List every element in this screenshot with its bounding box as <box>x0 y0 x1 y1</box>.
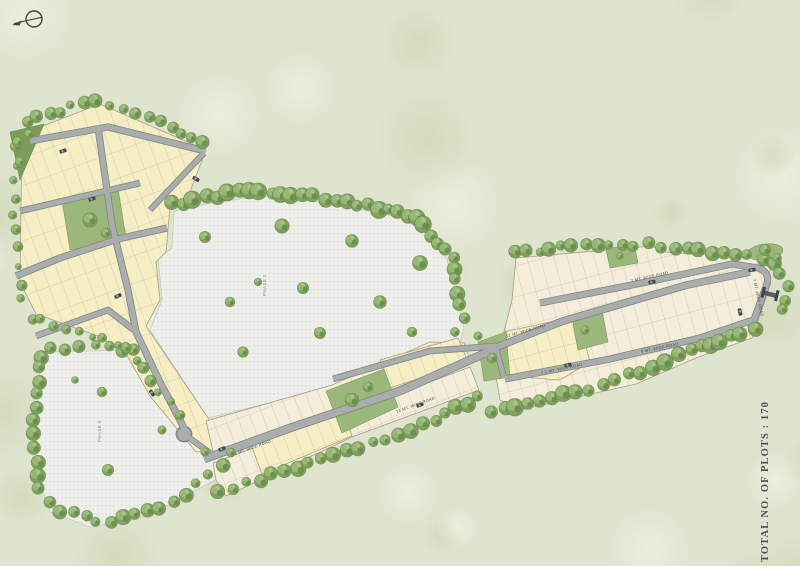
tree-icon <box>608 373 621 386</box>
tree-icon <box>302 457 313 468</box>
tree-icon <box>53 505 67 519</box>
tree-icon <box>604 240 613 249</box>
tree-icon <box>416 417 430 431</box>
tree-icon <box>759 244 771 256</box>
site-plan-canvas: PHASE 2 PHASE 3 12 MT. WIDE ROAD <box>0 0 800 566</box>
tree-icon <box>225 297 235 307</box>
tree-icon <box>186 132 196 142</box>
tree-icon <box>616 252 623 259</box>
tree-icon <box>275 219 289 233</box>
foliage-blob <box>378 3 458 83</box>
tree-icon <box>519 244 532 257</box>
tree-icon <box>91 340 100 349</box>
tree-icon <box>33 375 47 389</box>
tree-icon <box>176 129 186 139</box>
tree-icon <box>783 280 795 292</box>
tree-icon <box>116 509 131 524</box>
tree-icon <box>97 387 107 397</box>
tree-icon <box>643 237 655 249</box>
tree-icon <box>15 263 21 269</box>
tree-icon <box>369 437 379 447</box>
tree-icon <box>345 393 359 407</box>
tree-icon <box>105 341 115 351</box>
tree-icon <box>315 453 327 465</box>
tree-icon <box>15 157 25 167</box>
tree-icon <box>583 385 595 397</box>
tree-icon <box>506 399 523 416</box>
phase3-label: PHASE 3 <box>97 420 102 442</box>
tree-icon <box>407 327 417 337</box>
tree-icon <box>351 200 362 211</box>
tree-icon <box>114 341 122 349</box>
foliage-blob <box>375 460 441 526</box>
tree-icon <box>772 253 781 262</box>
tree-icon <box>403 424 418 439</box>
foliage-blob <box>373 84 481 192</box>
tree-icon <box>9 176 17 184</box>
tree-icon <box>487 353 497 363</box>
tree-icon <box>75 327 83 335</box>
tree-icon <box>88 94 102 108</box>
tree-icon <box>11 224 21 234</box>
tree-icon <box>564 238 578 252</box>
tree-icon <box>203 470 213 480</box>
tree-icon <box>30 401 43 414</box>
tree-icon <box>13 241 23 251</box>
tree-icon <box>228 484 239 495</box>
tree-icon <box>732 327 747 342</box>
tree-icon <box>485 406 498 419</box>
tree-icon <box>314 327 326 339</box>
tree-icon <box>175 410 185 420</box>
tree-icon <box>13 137 24 148</box>
tree-icon <box>154 389 161 396</box>
tree-icon <box>196 135 210 149</box>
tree-icon <box>773 267 785 279</box>
tree-icon <box>17 280 28 291</box>
tree-icon <box>62 325 72 335</box>
tree-icon <box>66 101 74 109</box>
tree-icon <box>380 435 391 446</box>
tree-icon <box>24 129 33 138</box>
tree-icon <box>201 448 210 457</box>
tree-icon <box>129 508 141 520</box>
tree-icon <box>91 517 101 527</box>
phase2-label: PHASE 2 <box>262 274 267 296</box>
tree-icon <box>69 506 80 517</box>
tree-icon <box>459 313 470 324</box>
total-plots-label: TOTAL NO. OF PLOTS : 170 <box>760 401 771 562</box>
tree-icon <box>183 191 200 208</box>
tree-icon <box>305 188 319 202</box>
tree-icon <box>474 332 483 341</box>
tree-icon <box>242 477 251 486</box>
tree-icon <box>351 442 365 456</box>
tree-icon <box>26 426 41 441</box>
tree-icon <box>32 482 44 494</box>
tree-icon <box>346 235 359 248</box>
tree-icon <box>30 110 43 123</box>
tree-icon <box>105 101 114 110</box>
tree-icon <box>210 484 224 498</box>
tree-icon <box>591 238 605 252</box>
site-plan-page: PHASE 2 PHASE 3 12 MT. WIDE ROAD <box>0 0 800 566</box>
tree-icon <box>158 426 167 435</box>
tree-icon <box>718 246 731 259</box>
tree-icon <box>44 342 56 354</box>
tree-icon <box>777 304 788 315</box>
tree-icon <box>374 296 387 309</box>
tree-icon <box>59 344 71 356</box>
tree-icon <box>250 183 267 200</box>
foliage-blob <box>750 133 796 179</box>
tree-icon <box>568 385 583 400</box>
tree-icon <box>26 413 40 427</box>
tree-icon <box>363 382 373 392</box>
tree-icon <box>439 243 451 255</box>
foliage-blob <box>261 50 339 128</box>
tree-icon <box>83 213 97 227</box>
tree-icon <box>617 239 628 250</box>
tree-icon <box>55 107 66 118</box>
tree-icon <box>453 298 466 311</box>
tree-icon <box>30 468 46 484</box>
tree-icon <box>17 294 25 302</box>
tree-icon <box>11 195 20 204</box>
tree-icon <box>155 115 167 127</box>
tree-icon <box>8 211 17 220</box>
tree-icon <box>657 354 674 371</box>
tree-icon <box>226 448 235 457</box>
tree-icon <box>238 347 249 358</box>
tree-icon <box>655 242 666 253</box>
tree-icon <box>89 334 96 341</box>
tree-icon <box>254 278 262 286</box>
tree-icon <box>216 458 230 472</box>
tree-icon <box>179 488 193 502</box>
tree-icon <box>522 397 534 409</box>
tree-icon <box>581 326 590 335</box>
tree-icon <box>412 255 427 270</box>
tree-icon <box>167 398 174 405</box>
tree-icon <box>119 104 129 114</box>
tree-icon <box>168 496 180 508</box>
tree-icon <box>541 242 555 256</box>
tree-icon <box>129 108 141 120</box>
tree-icon <box>449 273 460 284</box>
foliage-blob <box>652 194 690 232</box>
tree-icon <box>31 387 43 399</box>
tree-icon <box>98 333 107 342</box>
tree-icon <box>450 327 459 336</box>
foliage-blob <box>436 506 480 550</box>
tree-icon <box>35 314 45 324</box>
tree-icon <box>33 361 45 373</box>
tree-icon <box>144 111 155 122</box>
tree-icon <box>729 248 742 261</box>
tree-icon <box>191 479 200 488</box>
tree-icon <box>165 195 180 210</box>
tree-icon <box>581 238 593 250</box>
tree-icon <box>472 391 483 402</box>
tree-icon <box>138 362 150 374</box>
tree-icon <box>101 228 111 238</box>
tree-icon <box>690 242 705 257</box>
tree-icon <box>325 447 340 462</box>
tree-icon <box>278 464 292 478</box>
tree-icon <box>44 496 56 508</box>
tree-icon <box>73 340 86 353</box>
tree-icon <box>71 376 78 383</box>
tree-icon <box>748 322 763 337</box>
tree-icon <box>31 455 45 469</box>
tree-icon <box>152 502 166 516</box>
tree-icon <box>264 467 278 481</box>
tree-icon <box>102 464 114 476</box>
tree-icon <box>49 321 59 331</box>
tree-icon <box>669 242 682 255</box>
tree-icon <box>431 415 442 426</box>
tree-icon <box>628 241 639 252</box>
tree-icon <box>741 249 751 259</box>
tree-icon <box>199 231 211 243</box>
tree-icon <box>671 347 686 362</box>
tree-icon <box>27 441 40 454</box>
tree-icon <box>145 375 157 387</box>
tree-icon <box>533 395 546 408</box>
tree-icon <box>297 282 309 294</box>
